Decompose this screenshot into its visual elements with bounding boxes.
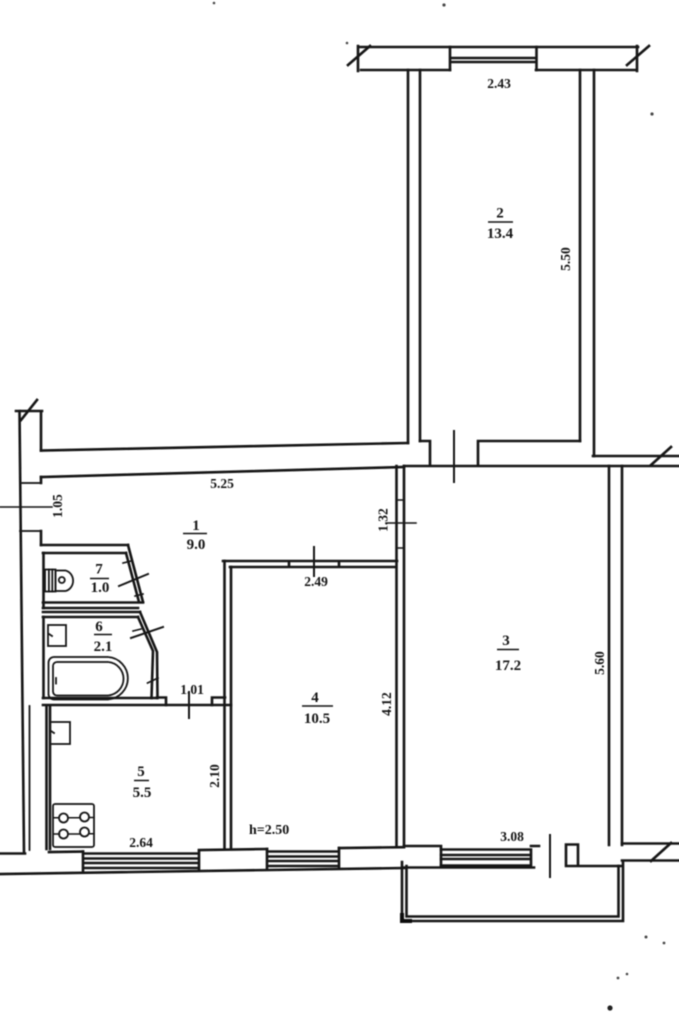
svg-text:4: 4 [311,690,319,706]
svg-text:h=2.50: h=2.50 [249,823,289,838]
svg-text:2.64: 2.64 [129,835,153,850]
svg-text:9.0: 9.0 [187,537,206,553]
svg-text:10.5: 10.5 [304,711,330,727]
svg-text:1: 1 [192,518,200,534]
svg-text:5: 5 [137,764,145,780]
svg-text:17.2: 17.2 [495,658,521,674]
svg-text:6: 6 [95,619,103,635]
svg-text:13.4: 13.4 [487,226,514,242]
svg-text:1.0: 1.0 [91,580,110,596]
svg-text:1.05: 1.05 [50,494,65,518]
svg-text:2.10: 2.10 [207,764,222,788]
svg-text:2.1: 2.1 [94,639,113,655]
svg-text:1.32: 1.32 [376,508,391,532]
svg-text:5.25: 5.25 [210,476,234,491]
svg-text:3.08: 3.08 [500,829,524,844]
svg-text:5.5: 5.5 [133,785,152,801]
svg-text:5.50: 5.50 [558,247,573,271]
svg-text:3: 3 [502,633,510,649]
svg-text:2: 2 [496,206,504,222]
svg-text:4.12: 4.12 [379,692,394,716]
svg-text:1.01: 1.01 [180,682,204,697]
svg-text:2.43: 2.43 [487,76,511,91]
svg-text:7: 7 [95,562,103,578]
svg-text:5.60: 5.60 [592,651,607,675]
svg-text:2.49: 2.49 [304,574,328,589]
